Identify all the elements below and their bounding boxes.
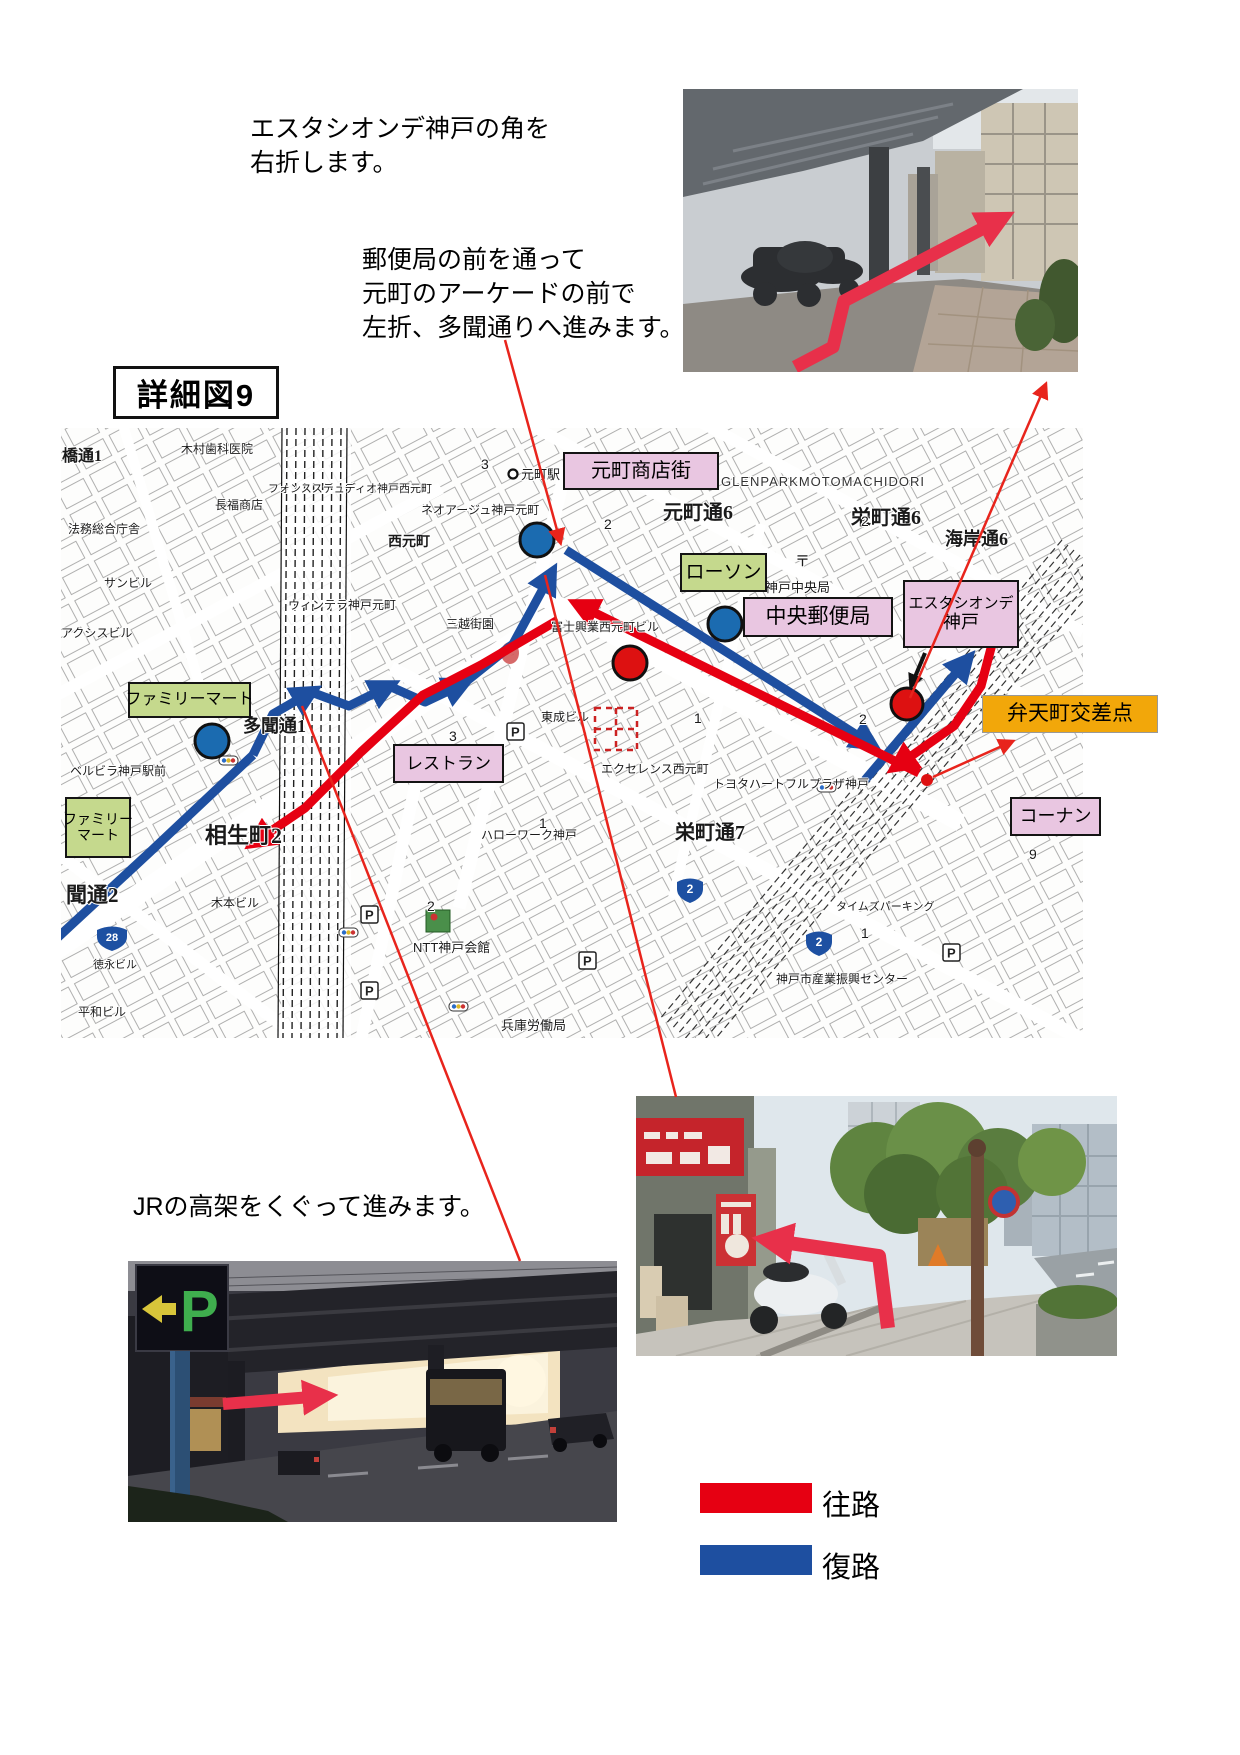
legend-return-label: 復路 <box>822 1544 880 1586</box>
label-ntt-kaikan: NTT神戸会館 <box>413 937 490 956</box>
label-rodo-kyoku: 兵庫労働局 <box>501 1015 566 1034</box>
lot-number: 2 <box>861 513 869 529</box>
red-marker-arcade <box>613 646 647 680</box>
callout-text: 弁天町交差点 <box>1007 702 1133 726</box>
note1-line2: 右折します。 <box>250 146 550 180</box>
postal-mark-icon: 〒 <box>795 550 810 571</box>
label-glenpark: GLENPARKMOTOMACHIDORI <box>721 474 925 489</box>
label-tosei-bldg: 東成ビル <box>541 708 589 725</box>
note1-line1: エスタシオンデ神戸の角を <box>250 112 550 146</box>
label-toyota: トヨタハートフルプラザ神戸 <box>713 775 869 792</box>
label-wintera: ウィンテラ神戸元町 <box>288 596 396 613</box>
lot-number: 3 <box>449 728 457 744</box>
lot-number: 1 <box>861 925 869 941</box>
photo-bentencho-sidewalk <box>636 1096 1117 1356</box>
route-guide-page: エスタシオンデ神戸の角を 右折します。 郵便局の前を通って 元町のアーケードの前… <box>0 0 1240 1755</box>
lot-number: 2 <box>604 516 612 532</box>
lot-number: 9 <box>1029 846 1037 862</box>
label-heiwa-bldg: 平和ビル <box>78 1003 126 1020</box>
photo-estacion-corner-art <box>683 89 1078 372</box>
callout-text: ファミリー <box>63 812 133 828</box>
route2-shield: 2 <box>816 935 823 949</box>
parking-icon: P <box>583 954 592 969</box>
label-neoage: ネオアージュ神戸元町 <box>421 501 539 518</box>
lot-number: 3 <box>481 456 489 472</box>
callout-text: ローソン <box>686 562 762 583</box>
photo2-planter <box>1036 1285 1117 1356</box>
callout-konan: コーナン <box>1010 797 1101 836</box>
label-homu-chosha: 法務総合庁舎 <box>68 520 140 537</box>
callout-estacion-de-kobe: エスタシオンデ 神戸 <box>903 580 1019 648</box>
label-kimoto-bldg: 木本ビル <box>211 894 259 911</box>
street-motomachi6: 元町通6 <box>663 496 733 525</box>
label-fons: フォンスステュディオ神戸西元町 <box>268 480 432 496</box>
callout-familymart-2: ファミリー マート <box>65 797 131 858</box>
lot-number: 1 <box>694 710 702 726</box>
street-tamon1: 多聞通1 <box>243 712 306 738</box>
parking-icon: P <box>511 725 520 740</box>
callout-text: ファミリーマート <box>126 691 254 709</box>
callout-bentencho-intersection: 弁天町交差点 <box>982 695 1158 733</box>
callout-familymart-1: ファミリーマート <box>128 682 251 718</box>
label-bellvilla: ベルビラ神戸駅前 <box>70 762 166 779</box>
callout-central-post-office: 中央郵便局 <box>743 597 893 637</box>
note2-line2: 元町のアーケードの前で <box>362 277 685 311</box>
label-fuji-kogyo: 富士興業西元町ビル <box>551 618 659 635</box>
note-turn-right-at-estacion: エスタシオンデ神戸の角を 右折します。 <box>250 112 550 180</box>
photo-bentencho-art <box>636 1096 1117 1356</box>
svg-text:P: P <box>180 1279 219 1344</box>
callout-text: コーナン <box>1020 806 1092 826</box>
label-kobe-chuo-kyoku: 神戸中央局 <box>765 577 830 596</box>
street-sakaemachi7: 栄町通7 <box>675 816 745 845</box>
label-times-parking: タイムズパーキング <box>836 898 934 914</box>
route28-shield: 28 <box>106 932 118 944</box>
red-marker-estacion <box>891 688 923 720</box>
callout-motomachi-shotengai: 元町商店街 <box>563 452 719 490</box>
callout-text: エスタシオンデ <box>909 596 1014 613</box>
street-nishimotomachi: 西元町 <box>388 531 430 551</box>
photo-estacion-corner <box>683 89 1078 372</box>
photo3-bus <box>426 1369 506 1462</box>
label-hellowork: ハローワーク神戸 <box>481 826 577 843</box>
callout-restaurant: レストラン <box>393 744 504 783</box>
lot-number: 2 <box>859 711 867 727</box>
label-excellence: エクセレンス西元町 <box>601 760 709 777</box>
blue-marker-motomachi <box>520 523 554 557</box>
legend-outbound-label: 往路 <box>822 1482 880 1524</box>
label-motomachi-station: 元町駅 <box>521 464 560 483</box>
photo-jr-underpass-art: P <box>128 1261 617 1522</box>
parking-icon: P <box>365 908 374 923</box>
callout-text: 神戸 <box>943 612 979 632</box>
label-axis-bldg: アクシスビル <box>61 624 132 641</box>
blue-marker-post-office <box>708 607 742 641</box>
street-aioicho2: 相生町2 <box>205 818 282 850</box>
label-tokunaga-bldg: 徳永ビル <box>93 956 137 972</box>
legend-return-bar <box>700 1545 812 1575</box>
callout-text: 中央郵便局 <box>766 605 871 629</box>
photo3-route-arrow <box>223 1396 324 1404</box>
bentencho-dot <box>921 774 933 786</box>
note-jr-underpass: JRの高架をくぐって進みます。 <box>133 1190 485 1224</box>
motomachi-station-icon <box>509 470 518 479</box>
callout-text: レストラン <box>406 754 491 773</box>
map-base: P P P P P 2 2 28 <box>61 428 1083 1038</box>
blue-marker-familymart <box>195 724 229 758</box>
callout-text: マート <box>77 828 119 844</box>
callout-lawson: ローソン <box>680 553 767 592</box>
callout-text: 元町商店街 <box>591 460 691 482</box>
route2-shield: 2 <box>687 882 694 896</box>
note3-line1: JRの高架をくぐって進みます。 <box>133 1190 485 1224</box>
label-chofuku-shoten: 長福商店 <box>215 496 263 513</box>
label-sun-bldg: サンビル <box>104 574 152 591</box>
page-title-text: 詳細図9 <box>137 370 255 415</box>
street-kaigan6: 海岸通6 <box>945 525 1008 551</box>
parking-icon: P <box>365 984 374 999</box>
note2-line1: 郵便局の前を通って <box>362 243 685 277</box>
street-tamon2: 聞通2 <box>66 879 119 909</box>
street-hashidori: 橋通1 <box>62 442 102 466</box>
parking-icon: P <box>947 946 956 961</box>
page-title: 詳細図9 <box>113 366 279 419</box>
lot-number: 1 <box>539 815 547 831</box>
label-sangyo-center: 神戸市産業振興センター <box>776 970 908 987</box>
label-mitsukoshi-gaien: 三越街園 <box>446 615 494 632</box>
legend-outbound-bar <box>700 1483 812 1513</box>
detail-map-9: P P P P P 2 2 28 <box>61 428 1083 1038</box>
note-pass-post-office: 郵便局の前を通って 元町のアーケードの前で 左折、多聞通りへ進みます。 <box>362 243 685 345</box>
lot-number: 2 <box>427 898 435 914</box>
photo-jr-underpass: P <box>128 1261 617 1522</box>
label-kimura-dental: 木村歯科医院 <box>181 440 253 457</box>
note2-line3: 左折、多聞通りへ進みます。 <box>362 311 685 345</box>
